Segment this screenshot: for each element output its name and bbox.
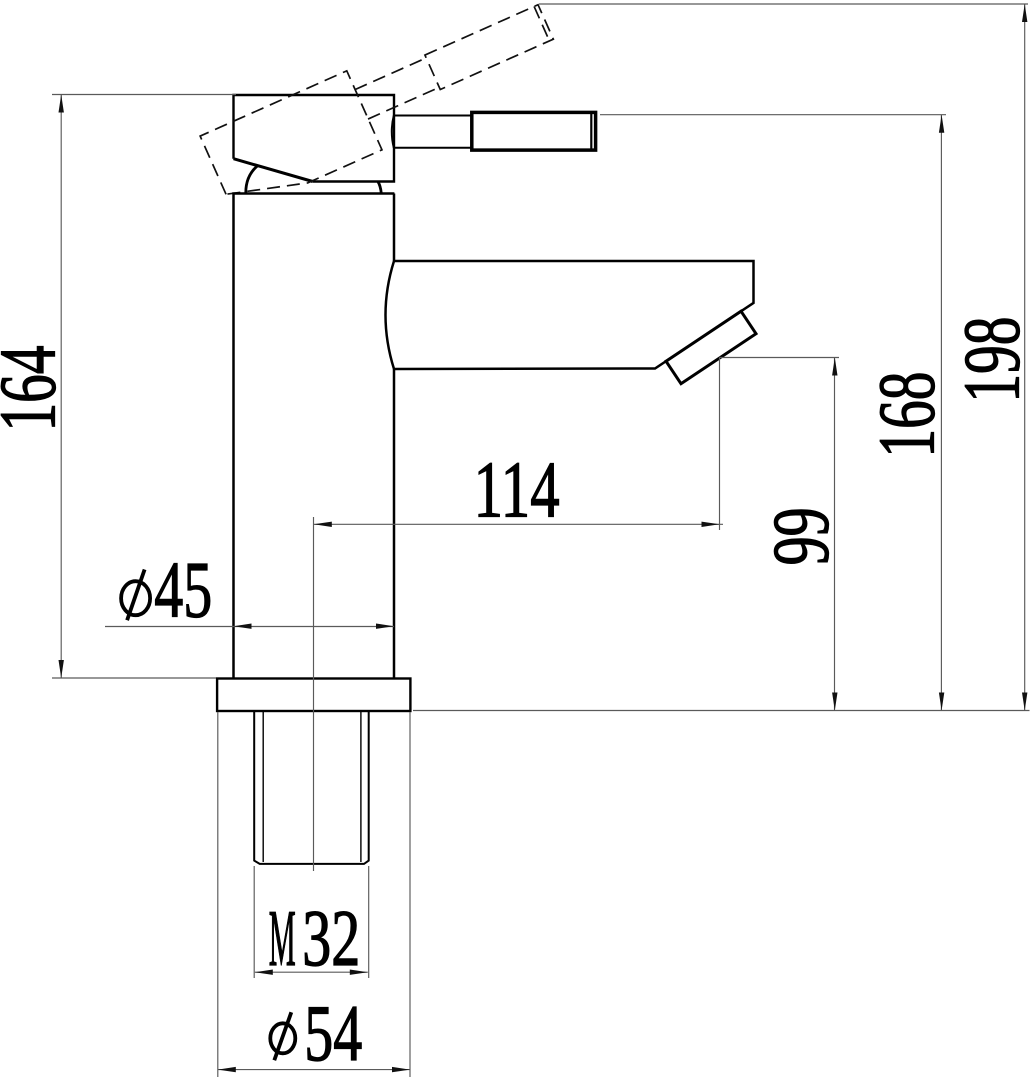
svg-text:99: 99 bbox=[758, 507, 846, 565]
svg-text:45: 45 bbox=[154, 547, 212, 635]
svg-text:32: 32 bbox=[302, 895, 360, 983]
svg-text:M: M bbox=[269, 895, 296, 983]
svg-text:164: 164 bbox=[0, 346, 73, 432]
svg-text:198: 198 bbox=[949, 317, 1035, 403]
svg-text:168: 168 bbox=[864, 372, 952, 458]
svg-text:114: 114 bbox=[474, 447, 560, 535]
svg-text:54: 54 bbox=[304, 990, 362, 1078]
